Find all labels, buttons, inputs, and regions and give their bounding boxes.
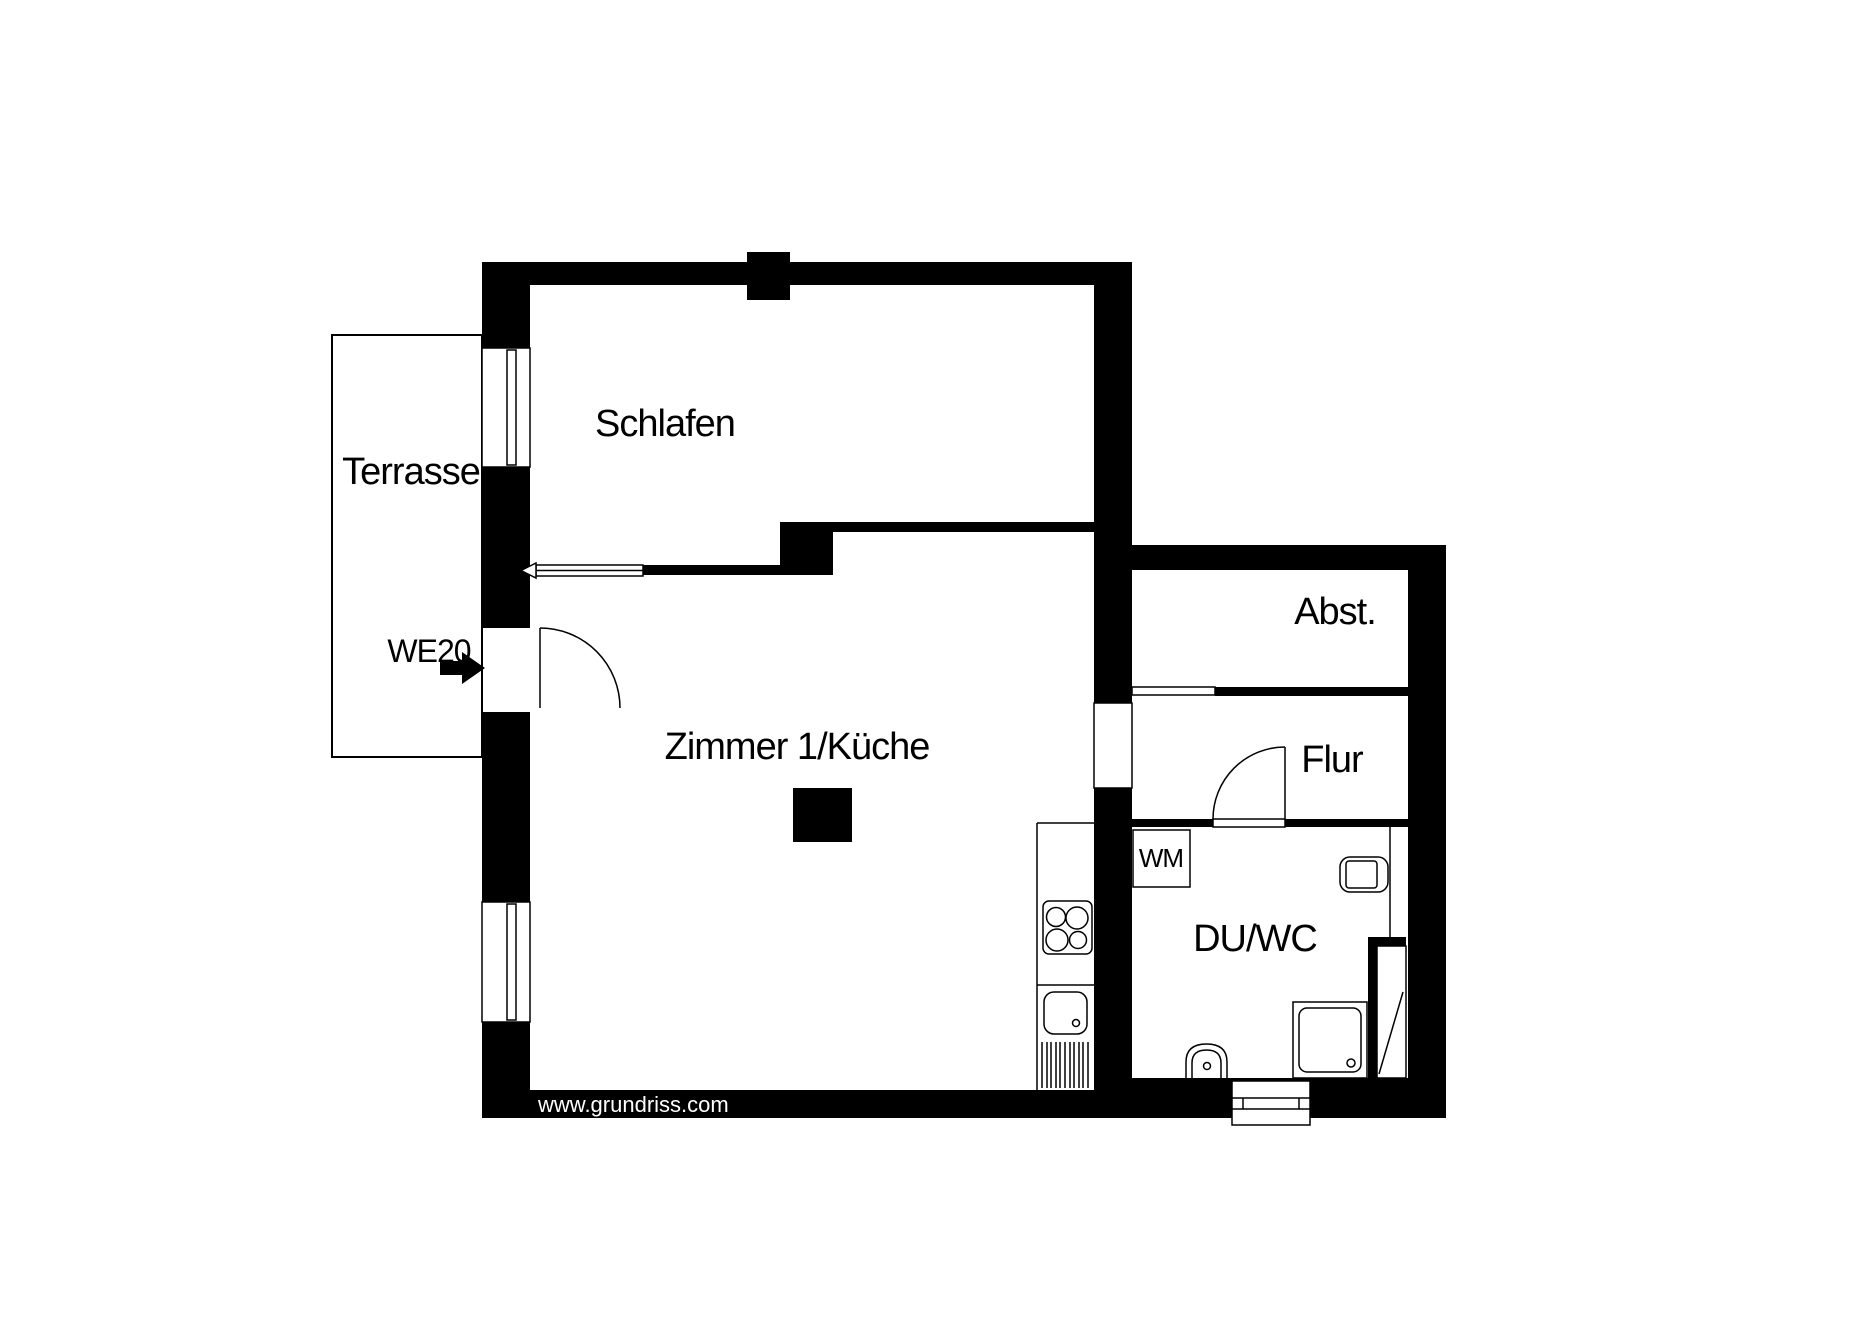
toilet-icon (1340, 857, 1388, 892)
left-wall-segment-2 (482, 467, 530, 628)
hatched-drainer-icon (1042, 1042, 1088, 1088)
walls (482, 252, 1446, 1118)
annex-right-wall (1408, 545, 1446, 1118)
duwc-partition-horizontal (1368, 937, 1406, 946)
flur-bottom-wall-left (1132, 819, 1213, 827)
du-wc-label: DU/WC (1193, 918, 1317, 960)
unit-label: WE20 (387, 633, 470, 669)
left-wall-segment-1 (482, 262, 530, 348)
duwc-partition-vertical (1368, 946, 1377, 1078)
stove-4-burners-icon (1043, 901, 1092, 954)
kitchen-counter (1037, 823, 1094, 1090)
passage-opening (1094, 703, 1132, 788)
top-wall (482, 262, 1132, 285)
room-pillar (793, 788, 852, 842)
window-icon (482, 902, 530, 1022)
sliding-door-icon (521, 563, 643, 578)
schlafen-divider-thin-right (833, 522, 1094, 532)
schlafen-label: Schlafen (595, 403, 735, 445)
flur-bottom-wall-right (1285, 819, 1408, 827)
abst-flur-divider-wall (1215, 687, 1408, 696)
flur-door-swing-icon (1213, 747, 1285, 827)
abstellraum-label: Abst. (1294, 591, 1376, 633)
schlafen-divider-thin-left (643, 565, 780, 575)
kitchen-sink-icon (1044, 992, 1087, 1034)
top-wall-pillar (747, 252, 790, 300)
left-wall-segment-3 (482, 712, 530, 902)
washbasin-icon (1186, 1044, 1227, 1078)
center-wall-upper (1094, 262, 1132, 703)
center-wall-lower (1094, 788, 1132, 1118)
window-icon (482, 348, 530, 467)
zimmer-kueche-label: Zimmer 1/Küche (665, 726, 930, 768)
shower-tray-icon (1293, 1002, 1367, 1078)
sliding-door-icon (1132, 687, 1215, 695)
floor-plan-drawing: Terrasse Schlafen Zimmer 1/Küche Abst. F… (0, 0, 1871, 1333)
washing-machine-label: WM (1139, 843, 1183, 873)
terrasse-outline (332, 335, 482, 757)
watermark-text: www.grundriss.com (537, 1092, 729, 1117)
installation-shaft-icon (1377, 946, 1406, 1078)
schlafen-divider-pillar (780, 522, 833, 575)
annex-top-wall (1132, 545, 1446, 570)
flur-label: Flur (1301, 739, 1364, 781)
doors (521, 563, 1285, 827)
floor-plan: Terrasse Schlafen Zimmer 1/Küche Abst. F… (0, 0, 1871, 1333)
terrasse-label: Terrasse (342, 451, 480, 493)
entrance-door-swing-icon (540, 628, 620, 708)
